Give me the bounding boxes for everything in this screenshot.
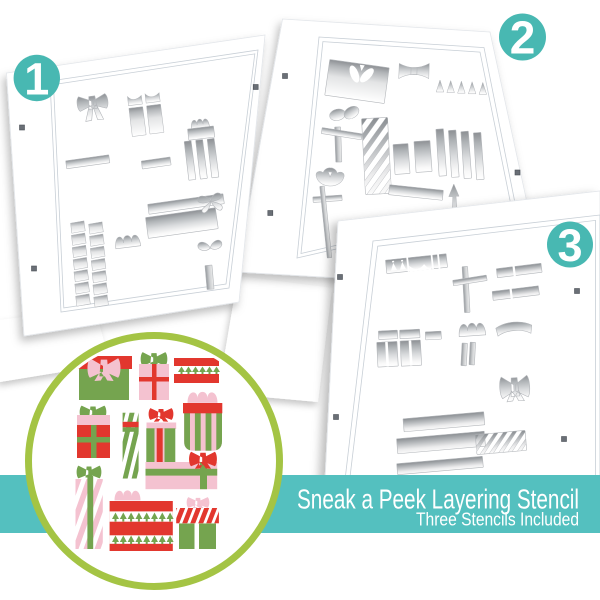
svg-text:3: 3 xyxy=(557,220,582,271)
svg-text:1: 1 xyxy=(24,54,49,105)
svg-text:Three Stencils Included: Three Stencils Included xyxy=(416,509,579,529)
svg-text:2: 2 xyxy=(510,12,536,64)
